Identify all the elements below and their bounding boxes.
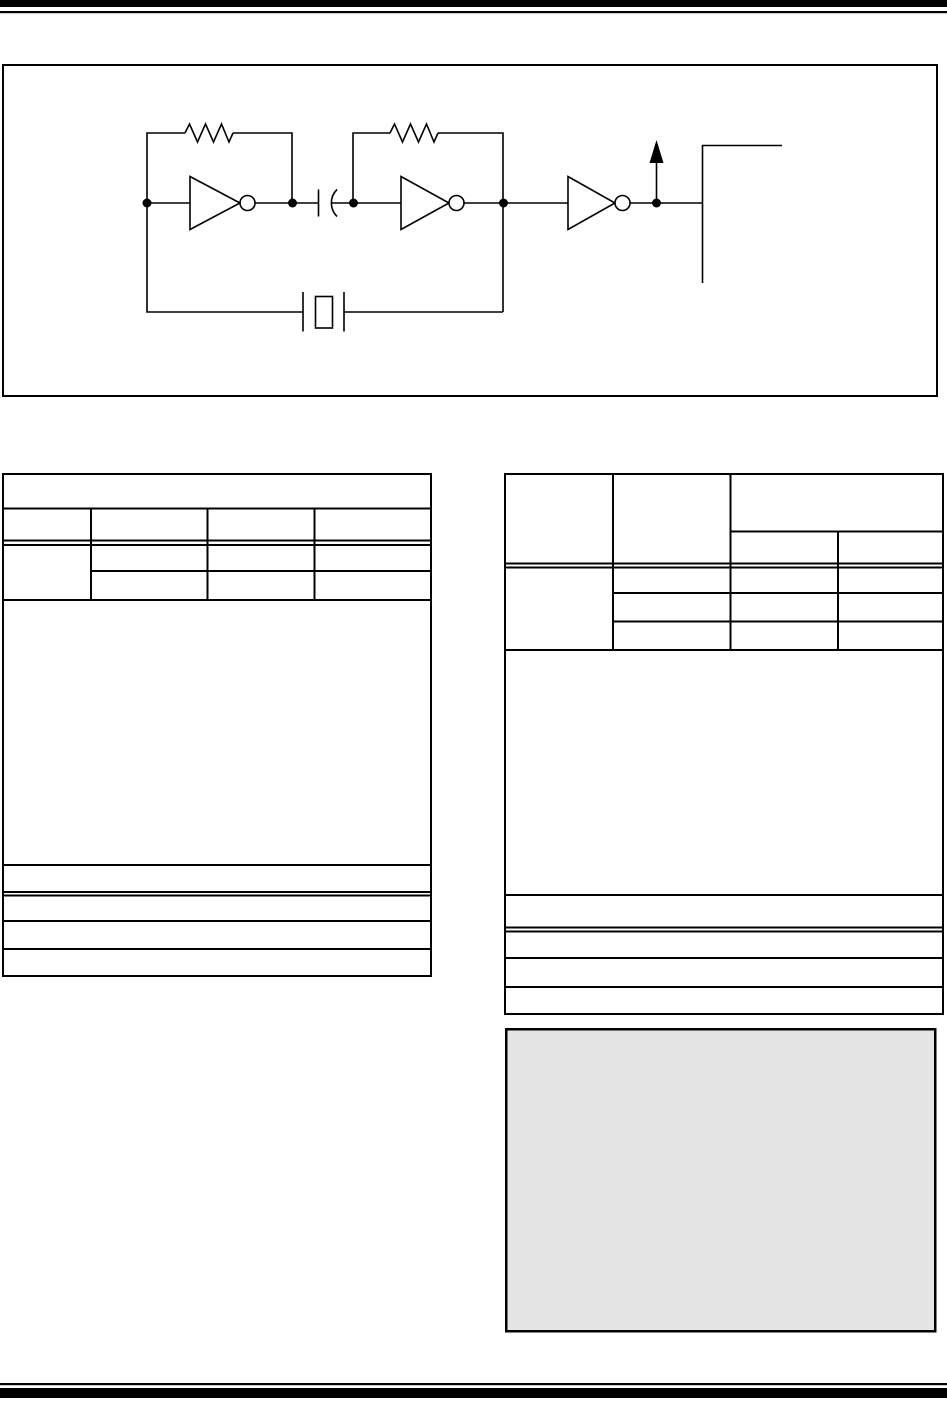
top-rule-thick	[0, 0, 947, 7]
inverter-3-triangle	[568, 177, 615, 230]
feedback-resistor-1	[147, 124, 292, 203]
inverter-1-triangle	[190, 177, 240, 230]
left-table	[2, 474, 432, 976]
node-dot-4	[499, 199, 508, 208]
inverter-1-bubble	[240, 196, 255, 211]
right-table-border	[505, 474, 943, 1014]
bottom-rule-thick	[0, 1388, 947, 1398]
crystal-body	[316, 297, 333, 329]
inverter-2-bubble	[449, 196, 464, 211]
output-arrow-head	[650, 140, 664, 163]
inverter-3-bubble	[615, 196, 630, 211]
bottom-rule-thin	[0, 1383, 947, 1385]
oscillator-figure	[3, 65, 937, 396]
output-corner-bracket	[703, 146, 783, 284]
right-table	[504, 474, 944, 1014]
node-dot-2	[288, 199, 297, 208]
node-dot-3	[349, 199, 358, 208]
figure-frame	[3, 65, 937, 396]
node-dot-1	[143, 199, 152, 208]
crystal-plates	[303, 292, 344, 332]
coupling-capacitor	[292, 190, 353, 217]
node-dot-5	[652, 199, 661, 208]
top-rule-thin	[0, 11, 947, 13]
inverter-2-triangle	[401, 177, 449, 230]
left-table-border	[3, 474, 431, 976]
page-canvas	[0, 0, 947, 1412]
datasheet-page	[0, 0, 947, 1412]
note-box	[506, 1029, 935, 1331]
